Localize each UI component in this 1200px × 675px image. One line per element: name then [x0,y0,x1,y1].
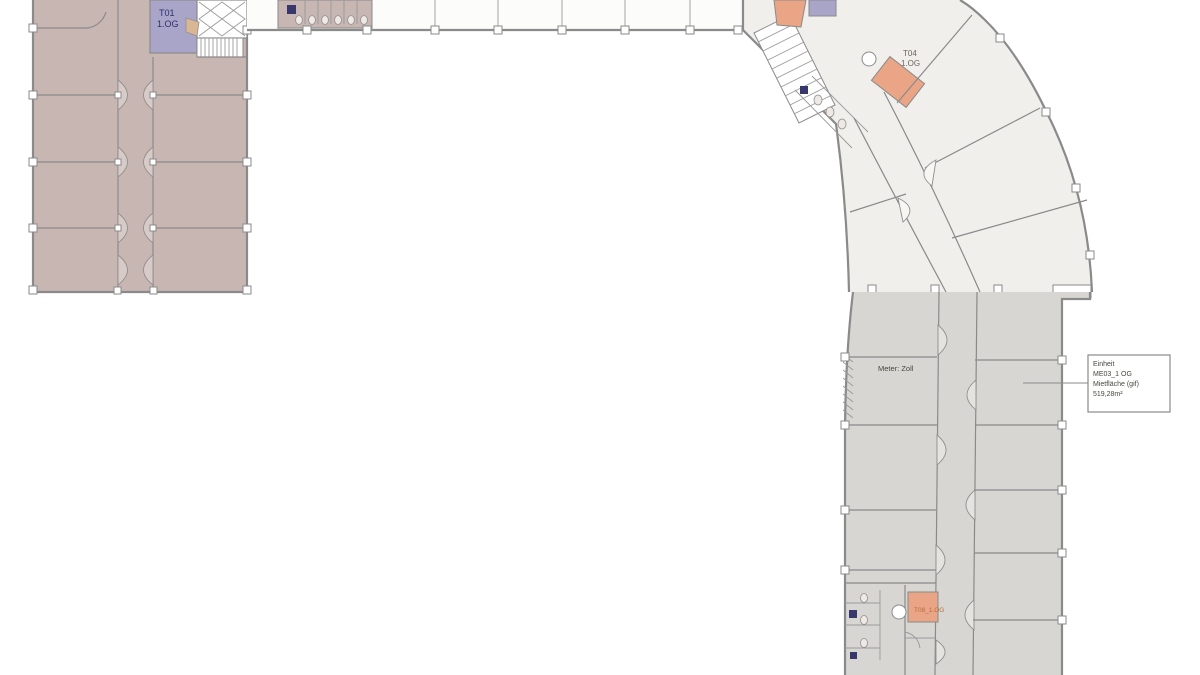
annotation-line4: 519,28m² [1093,391,1123,398]
column-round [862,52,876,66]
t08-label: T08_1.OG [914,607,944,614]
annotation-line2: ME03_1 OG [1093,371,1132,378]
wc-block-top [278,0,372,28]
annotation-line3: Mietfläche (gif) [1093,381,1139,388]
top-corridor-wing [247,0,743,34]
floor-plan-drawing: T01 1.OG [0,0,1200,675]
column-round [892,605,906,619]
upper-curve-wing: T04 1.OG [743,0,1094,298]
left-stair-core: T01 1.OG [150,0,247,57]
t01-label-line1: T01 [159,8,175,18]
stairs [197,38,243,57]
left-wing: T01 1.OG [29,0,251,294]
t01-label-line2: 1.OG [157,19,179,29]
elevator [774,0,806,27]
floor-plan-page: T01 1.OG [0,0,1200,675]
scale-note-label: Meter: Zoll [878,364,914,373]
t04-label-line2: 1.OG [901,59,920,68]
lower-gray-wing: Meter: Zoll T08_1.OG [841,292,1090,675]
t04-label-line1: T04 [903,49,917,58]
shaft-room [809,0,836,16]
annotation-line1: Einheit [1093,361,1114,368]
